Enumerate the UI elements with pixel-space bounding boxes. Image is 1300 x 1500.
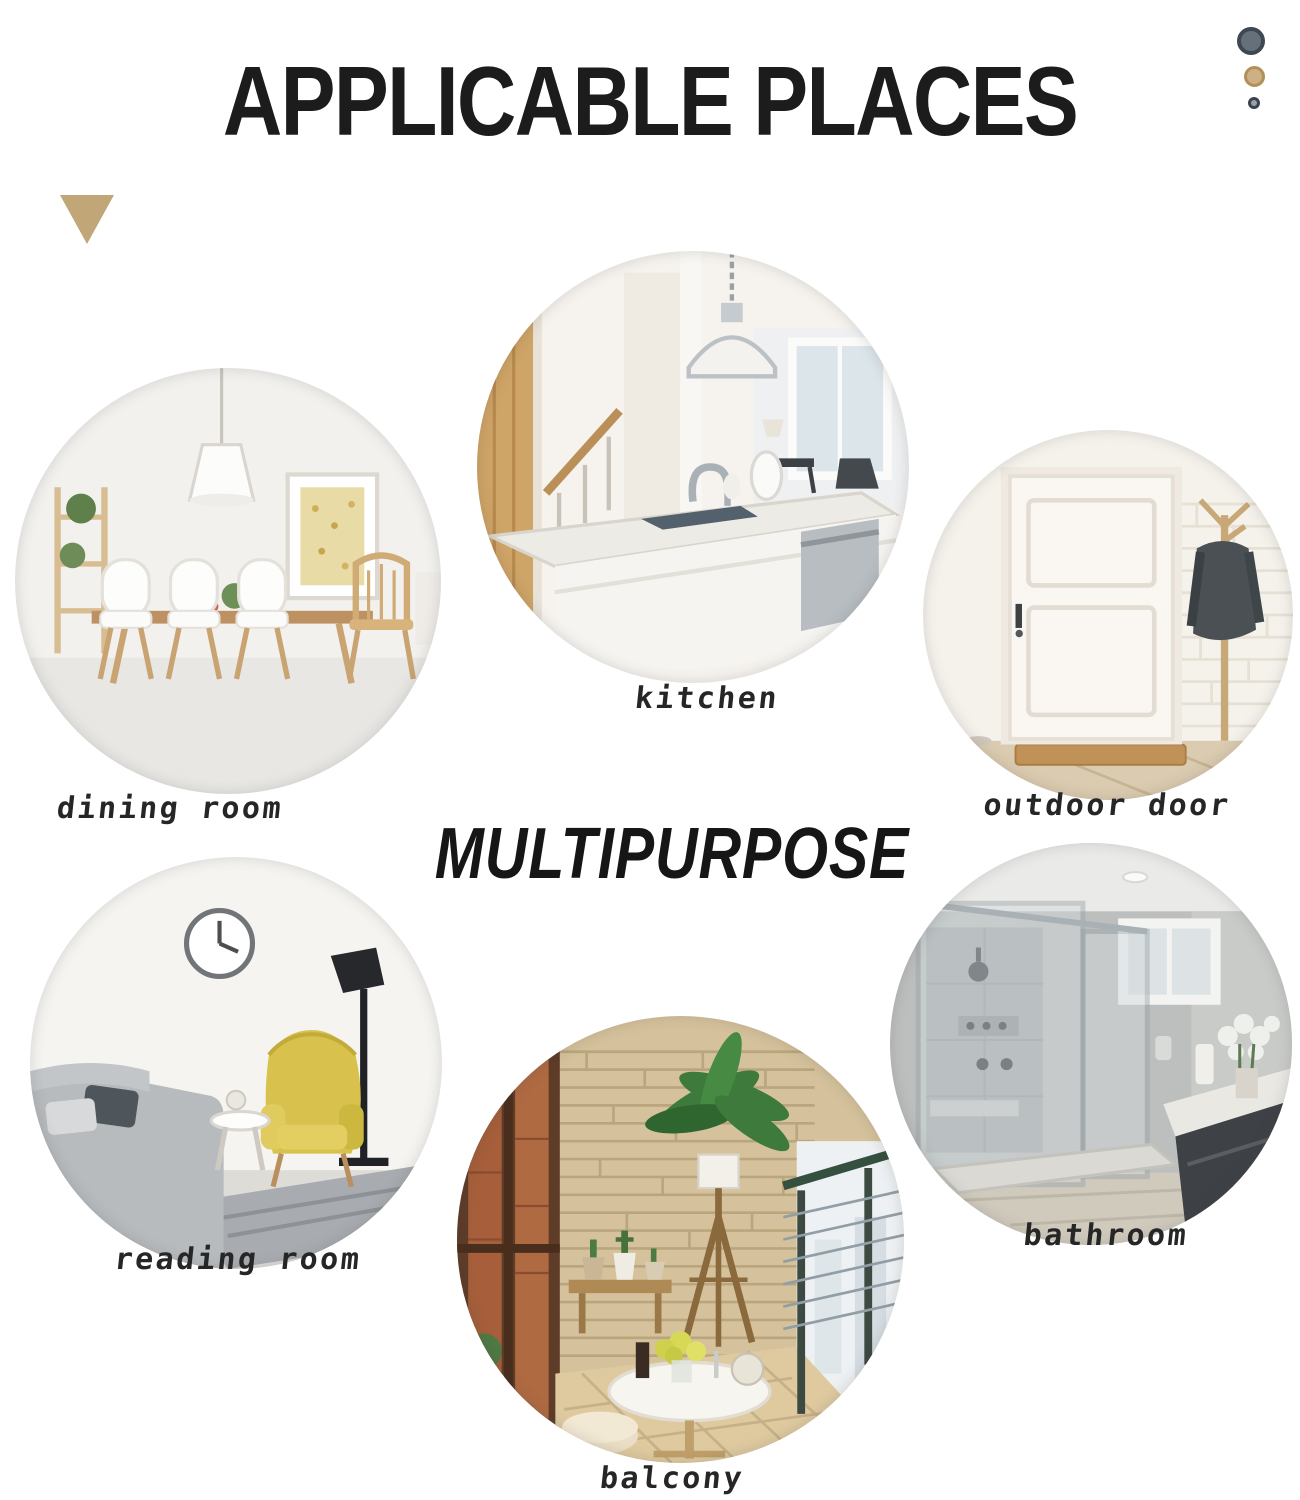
dot-large-icon (1237, 27, 1265, 55)
reading-room-scene (30, 857, 442, 1269)
balcony-scene (457, 1016, 904, 1463)
outdoor-door-photo (923, 430, 1293, 800)
dining-room-label: dining room (55, 794, 284, 824)
reading-room-label: reading room (113, 1245, 363, 1275)
outdoor-door-scene (923, 430, 1293, 800)
kitchen-scene (477, 251, 909, 683)
dining-room-scene (15, 368, 441, 794)
kitchen-photo (477, 251, 909, 683)
page-title: APPLICABLE PLACES (223, 52, 1077, 150)
kitchen-label: kitchen (633, 684, 780, 714)
applicable-places-poster: APPLICABLE PLACES MULTIPURPOSE (0, 0, 1300, 1500)
reading-room-photo (30, 857, 442, 1269)
triangle-down-icon (60, 195, 114, 244)
dining-room-photo (15, 368, 441, 794)
multipurpose-text: MULTIPURPOSE (435, 818, 910, 890)
balcony-photo (457, 1016, 904, 1463)
bathroom-scene (890, 843, 1292, 1245)
bathroom-label: bathroom (1022, 1221, 1190, 1251)
dot-medium-icon (1244, 66, 1265, 87)
balcony-label: balcony (598, 1464, 745, 1494)
outdoor-door-label: outdoor door (982, 791, 1232, 821)
bathroom-photo (890, 843, 1292, 1245)
dot-small-icon (1248, 97, 1260, 109)
